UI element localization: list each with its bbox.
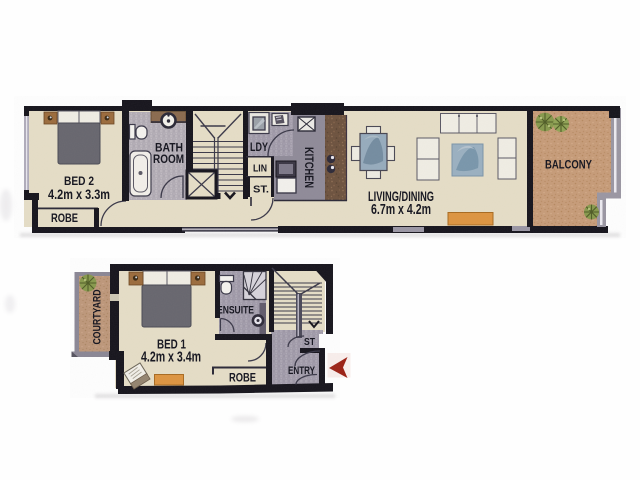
svg-text:COURTYARD: COURTYARD (92, 289, 104, 344)
svg-text:6.7m x 4.2m: 6.7m x 4.2m (371, 201, 431, 218)
svg-text:4.2m x 3.3m: 4.2m x 3.3m (48, 186, 110, 202)
svg-text:LDY: LDY (250, 142, 268, 154)
svg-text:ROOM: ROOM (153, 152, 184, 166)
svg-text:ROBE: ROBE (51, 211, 78, 225)
svg-text:ENSUITE: ENSUITE (217, 305, 254, 317)
svg-text:ROBE: ROBE (229, 371, 256, 385)
svg-text:ST.: ST. (253, 184, 269, 196)
svg-text:KITCHEN: KITCHEN (302, 147, 316, 188)
svg-text:4.2m x 3.4m: 4.2m x 3.4m (141, 349, 201, 366)
svg-text:LIN: LIN (253, 163, 267, 175)
svg-text:ST: ST (304, 336, 315, 348)
svg-text:BALCONY: BALCONY (545, 160, 592, 172)
